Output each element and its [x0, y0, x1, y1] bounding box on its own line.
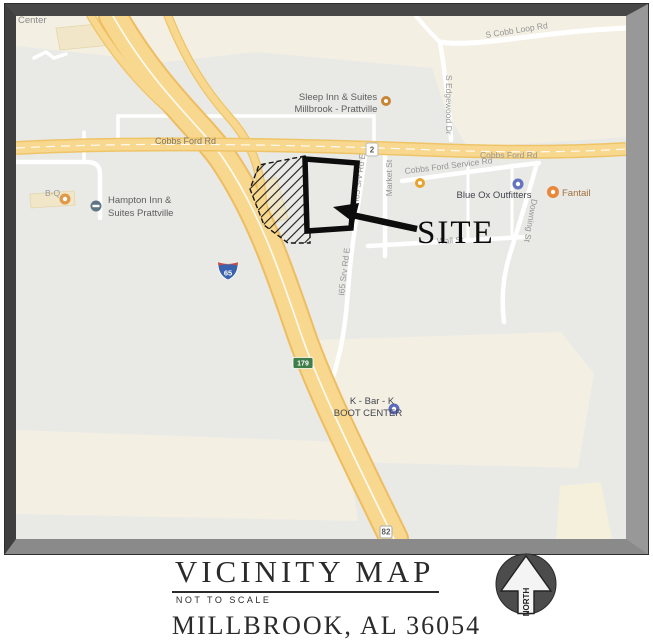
label-kbark-2: BOOT CENTER [334, 408, 403, 419]
vicinity-map-canvas: Center S Cobb Loop Rd S Edgewood Dr Cobb… [16, 16, 626, 539]
sleep-inn-marker [381, 96, 391, 106]
map-frame: Center S Cobb Loop Rd S Edgewood Dr Cobb… [5, 4, 648, 554]
label-blue-ox: Blue Ox Outfitters [457, 190, 532, 201]
fantail-marker [547, 186, 559, 198]
shield-i65-text: 65 [224, 269, 232, 278]
shield-al179-text: 179 [297, 361, 309, 368]
shield-al2-text: 2 [370, 146, 375, 155]
hampton-marker [91, 201, 102, 212]
site-label: SITE [417, 215, 495, 251]
label-sleep-inn-1: Sleep Inn & Suites [299, 92, 377, 103]
blue-ox-marker [513, 179, 524, 190]
title-wrap: VICINITY MAP NOT TO SCALE MILLBROOK, AL … [172, 554, 481, 641]
north-arrow: NORTH [493, 551, 559, 617]
scale-note: NOT TO SCALE [176, 595, 481, 605]
shield-al179: 179 [293, 358, 313, 369]
bq-marker [60, 194, 71, 205]
label-center-partial: Center [18, 16, 47, 26]
label-hampton-2: Suites Prattville [108, 208, 173, 219]
site-outline [305, 159, 357, 231]
label-sleep-inn-2: Millbrook - Prattville [295, 104, 378, 115]
label-s-edgewood: S Edgewood Dr [444, 75, 454, 135]
land-commercial-southwest [16, 430, 358, 521]
shield-us82-text: 82 [382, 528, 391, 537]
label-cobbs-ford-left: Cobbs Ford Rd [155, 136, 216, 146]
label-market-st: Market St [384, 159, 394, 196]
label-kbark-1: K - Bar - K [350, 396, 395, 407]
map-title: VICINITY MAP [172, 554, 440, 593]
shield-al2: 2 [366, 143, 378, 156]
label-fantail: Fantail [562, 188, 591, 199]
shield-us82: 82 [380, 526, 392, 538]
north-arrow-label: NORTH [522, 588, 531, 617]
service-rd-marker [415, 178, 425, 188]
label-bq: B-Q [45, 188, 61, 198]
label-hampton-1: Hampton Inn & [108, 195, 172, 206]
location-title: MILLBROOK, AL 36054 [172, 611, 481, 641]
